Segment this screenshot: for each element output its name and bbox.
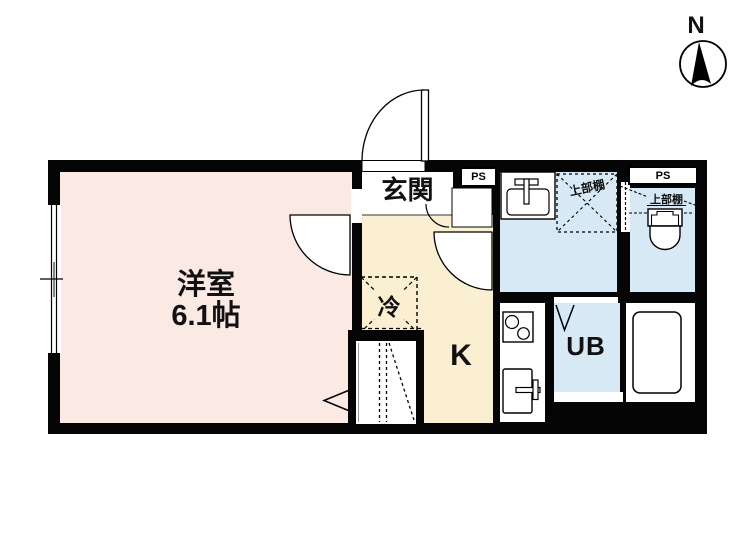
- bathtub-icon: [633, 312, 681, 393]
- toilet-icon: [648, 209, 682, 249]
- door-direction-arrow: [324, 389, 352, 412]
- washbasin: [501, 172, 555, 219]
- kitchen-sink-icon: [503, 369, 540, 413]
- entrance-label: 玄関: [362, 171, 453, 205]
- living-room-size: 6.1帖: [171, 301, 240, 332]
- closet-ladder-marks: [324, 329, 421, 423]
- entry-door: [362, 90, 429, 172]
- north-label: N: [683, 12, 709, 40]
- living-doorway-gap: [351, 189, 362, 223]
- linework-layer: [0, 0, 750, 550]
- fridge-label: 冷: [374, 290, 404, 319]
- kitchen-label: K: [436, 338, 486, 374]
- stove-icon: [503, 312, 533, 342]
- washroom-door: [434, 232, 492, 290]
- ub-door-v-mark: [556, 305, 574, 330]
- living-window: [40, 205, 63, 353]
- toilet-shelf-label: 上部棚: [647, 192, 686, 206]
- pipe-space-2: PS: [628, 166, 698, 185]
- room-living-label: 洋室 6.1帖: [126, 268, 286, 334]
- floorplan-canvas: 洋室 6.1帖 玄関 K 冷 UB PS PS 上部棚 上部棚 N: [0, 0, 750, 550]
- north-compass-icon: [680, 41, 726, 87]
- unit-bath-label: UB: [560, 331, 612, 361]
- living-room-name: 洋室: [177, 270, 235, 301]
- pipe-space-1: PS: [460, 167, 497, 187]
- living-room-door: [290, 189, 362, 275]
